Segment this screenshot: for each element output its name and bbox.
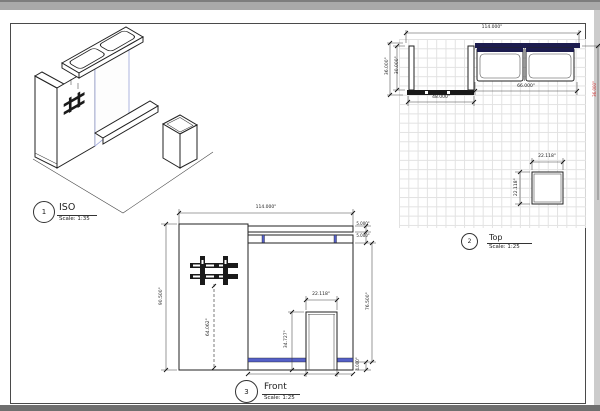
front-view-number: 3 xyxy=(235,380,258,403)
drawing-linework xyxy=(0,0,600,411)
dim-front-pedestal-width: 22.118" xyxy=(301,293,341,298)
iso-left-wall xyxy=(35,76,57,168)
dim-top-pedestal-width: 22.118" xyxy=(527,155,567,160)
front-view-scale: Scale: 1:25 xyxy=(264,396,295,402)
dim-top-overall-width: 114.000" xyxy=(462,26,522,31)
top-view-drawing xyxy=(387,30,600,206)
front-baseboard-left xyxy=(248,358,306,362)
dim-top-depth-outer: 36.000" xyxy=(386,41,391,91)
dim-front-header-thickness: 5.000" xyxy=(352,222,374,226)
top-left-return-wall xyxy=(409,46,414,90)
iso-view-number: 1 xyxy=(33,201,55,223)
top-counter-1 xyxy=(477,48,523,81)
iso-back-wall xyxy=(57,66,95,168)
dim-front-header-gap: 5.000" xyxy=(352,234,374,238)
dim-front-pedestal-height: 34.727" xyxy=(285,314,290,364)
iso-view-title: ISO xyxy=(59,202,75,213)
front-left-panel xyxy=(179,224,248,370)
dim-front-base-height: 4.000" xyxy=(356,344,360,384)
iso-pedestal xyxy=(163,115,197,168)
top-view-scale: Scale: 1:25 xyxy=(489,245,520,251)
top-counter-2 xyxy=(526,48,574,81)
top-mid-wall xyxy=(468,46,474,90)
iso-view-scale: Scale: 1:35 xyxy=(59,217,90,223)
top-pedestal xyxy=(532,172,563,204)
top-view-number: 2 xyxy=(461,233,478,250)
front-view-drawing xyxy=(161,209,376,377)
front-view-title: Front xyxy=(264,382,287,392)
dim-top-depth-inner: 30.000" xyxy=(396,40,401,90)
top-view-title: Top xyxy=(489,233,503,242)
dim-front-wall-body: 76.500" xyxy=(367,276,372,326)
top-back-wall xyxy=(475,43,580,48)
dim-front-overall-width: 114.000" xyxy=(236,206,296,211)
front-baseboard-right xyxy=(337,358,353,362)
dim-top-left-section: 48.000" xyxy=(411,96,471,101)
dim-front-overall-height: 90.500" xyxy=(160,271,165,321)
dim-top-right-edge-red: 36.000" xyxy=(593,64,597,114)
iso-view-drawing xyxy=(33,27,213,213)
front-pedestal xyxy=(306,312,337,370)
front-header-band-1 xyxy=(248,226,353,232)
dim-top-pedestal-depth: 22.118" xyxy=(515,162,520,212)
dim-top-counter-run: 66.000" xyxy=(496,85,556,90)
dim-front-monitor-center: 64.062" xyxy=(207,302,212,352)
